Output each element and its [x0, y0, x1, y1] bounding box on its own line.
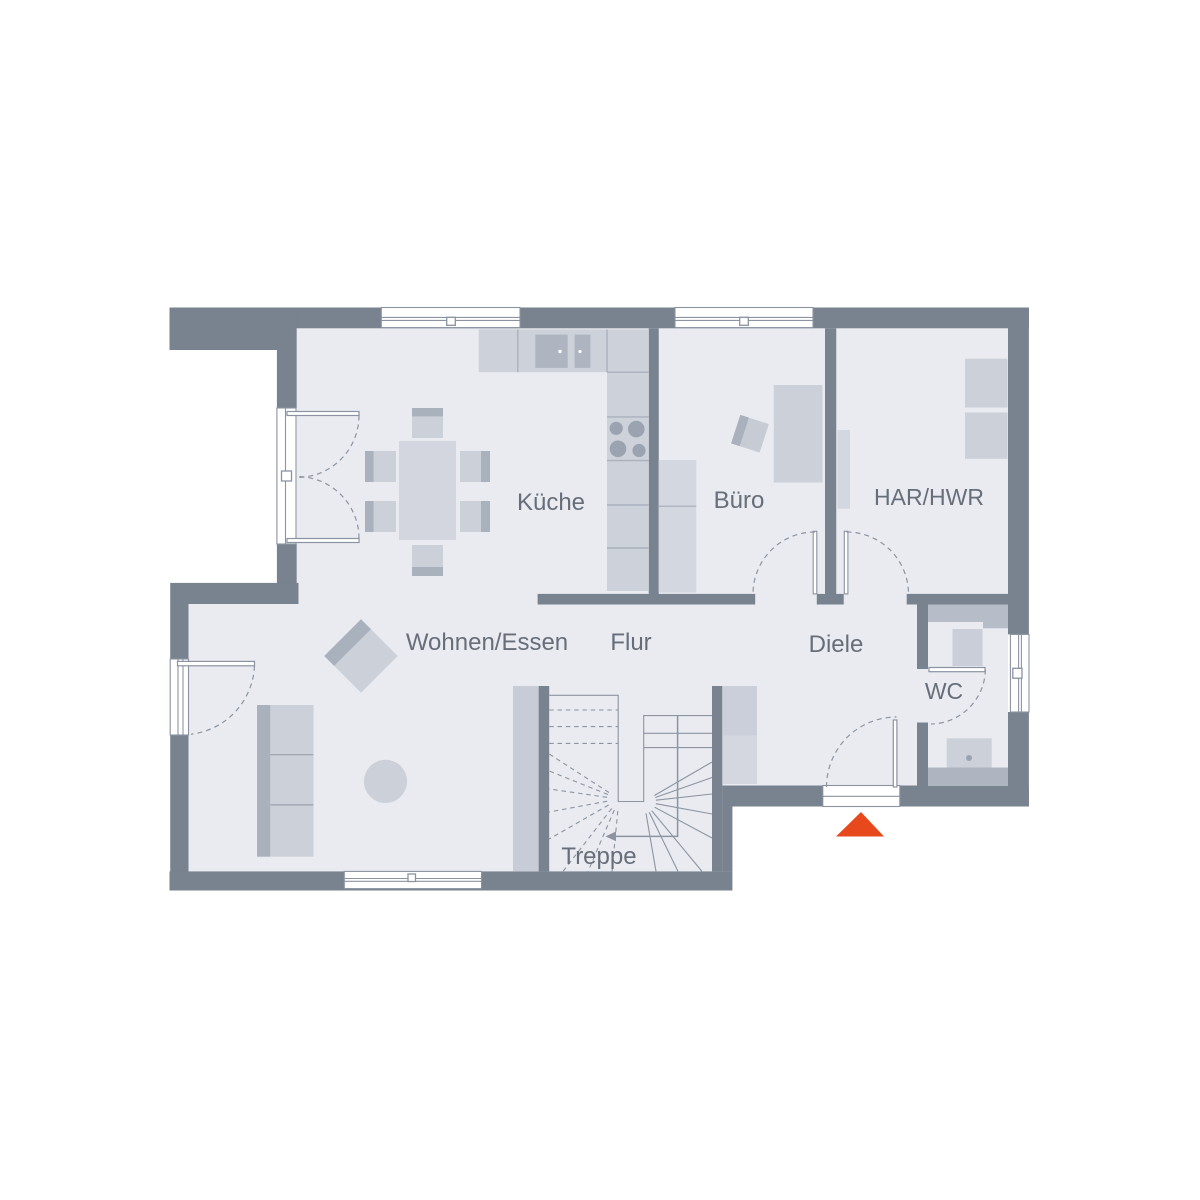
svg-text:WC: WC — [925, 678, 963, 704]
svg-text:Küche: Küche — [517, 489, 585, 516]
svg-text:Flur: Flur — [610, 629, 651, 656]
svg-text:Treppe: Treppe — [561, 843, 636, 870]
svg-text:HAR/HWR: HAR/HWR — [874, 484, 984, 510]
svg-text:Büro: Büro — [714, 487, 765, 514]
svg-text:Diele: Diele — [809, 631, 864, 658]
svg-text:Wohnen/Essen: Wohnen/Essen — [406, 629, 568, 656]
